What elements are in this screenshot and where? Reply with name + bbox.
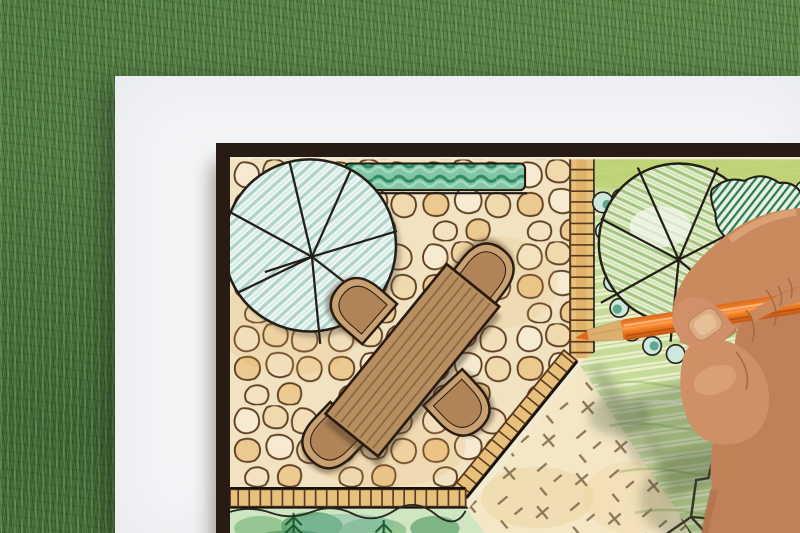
artist-hand: [540, 190, 800, 533]
photo-stage: Overhead photograph of a hand holding an…: [0, 0, 800, 533]
brick-edge-bottom: [230, 488, 468, 507]
planting-bed-bottom: [230, 505, 494, 533]
